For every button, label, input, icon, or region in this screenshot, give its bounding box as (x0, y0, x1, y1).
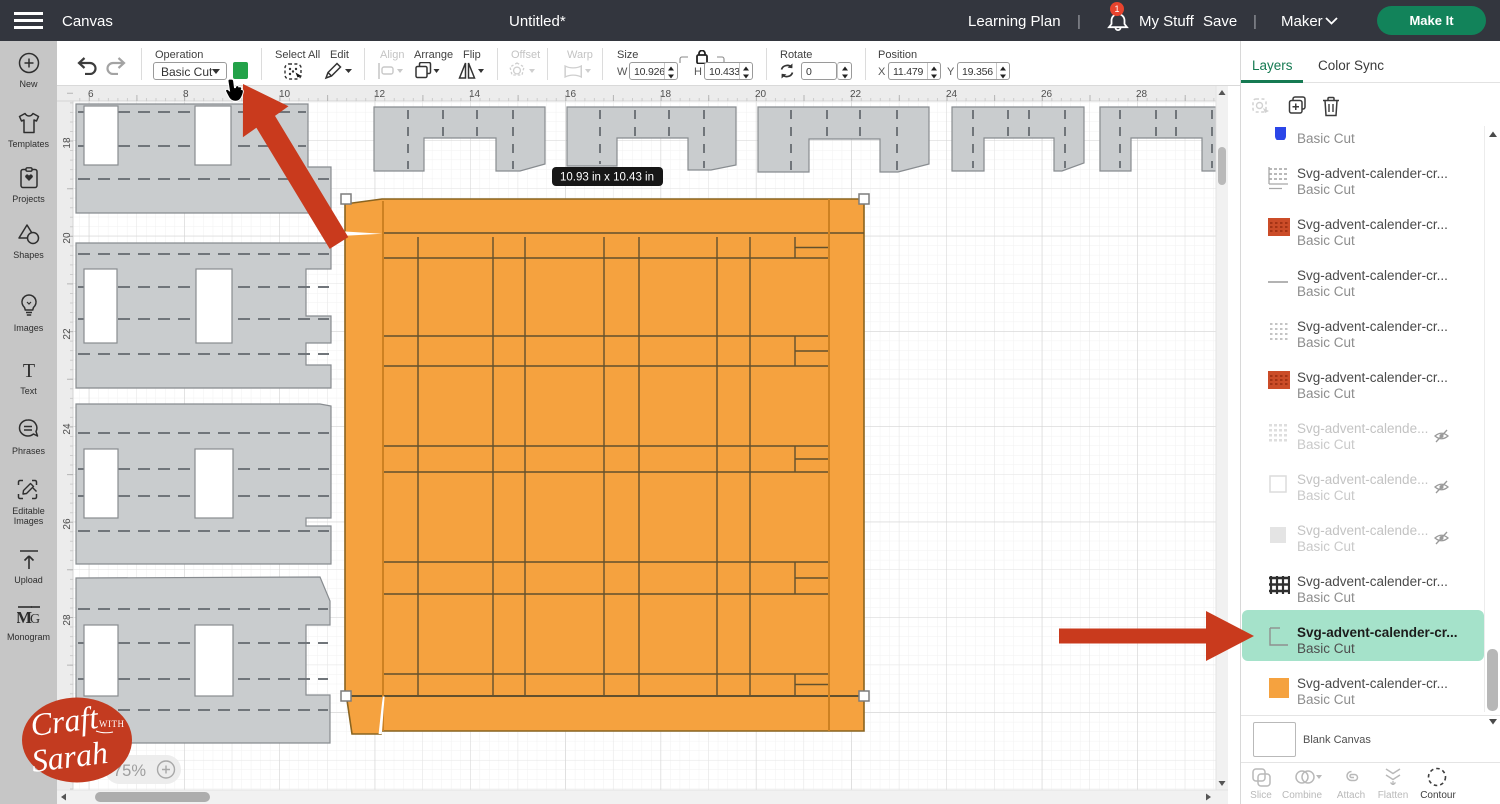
svg-text:22: 22 (850, 89, 862, 100)
svg-text:10: 10 (279, 89, 291, 100)
svg-text:18: 18 (660, 89, 672, 100)
svg-text:T: T (22, 361, 34, 381)
svg-text:20: 20 (62, 232, 73, 244)
svg-text:6: 6 (88, 89, 94, 100)
svg-text:28: 28 (1136, 89, 1148, 100)
svg-text:24: 24 (946, 89, 958, 100)
svg-text:26: 26 (62, 518, 73, 530)
svg-text:G: G (29, 612, 39, 627)
svg-text:16: 16 (565, 89, 577, 100)
svg-text:14: 14 (469, 89, 481, 100)
svg-text:8: 8 (183, 89, 189, 100)
svg-text:18: 18 (62, 137, 73, 149)
svg-text:24: 24 (62, 423, 73, 435)
svg-text:10.93 in x 10.43 in: 10.93 in x 10.43 in (560, 172, 654, 184)
svg-text:22: 22 (62, 328, 73, 340)
svg-text:26: 26 (1041, 89, 1053, 100)
svg-text:75%: 75% (113, 762, 146, 780)
svg-text:12: 12 (374, 89, 386, 100)
svg-text:20: 20 (755, 89, 767, 100)
svg-text:28: 28 (62, 614, 73, 626)
